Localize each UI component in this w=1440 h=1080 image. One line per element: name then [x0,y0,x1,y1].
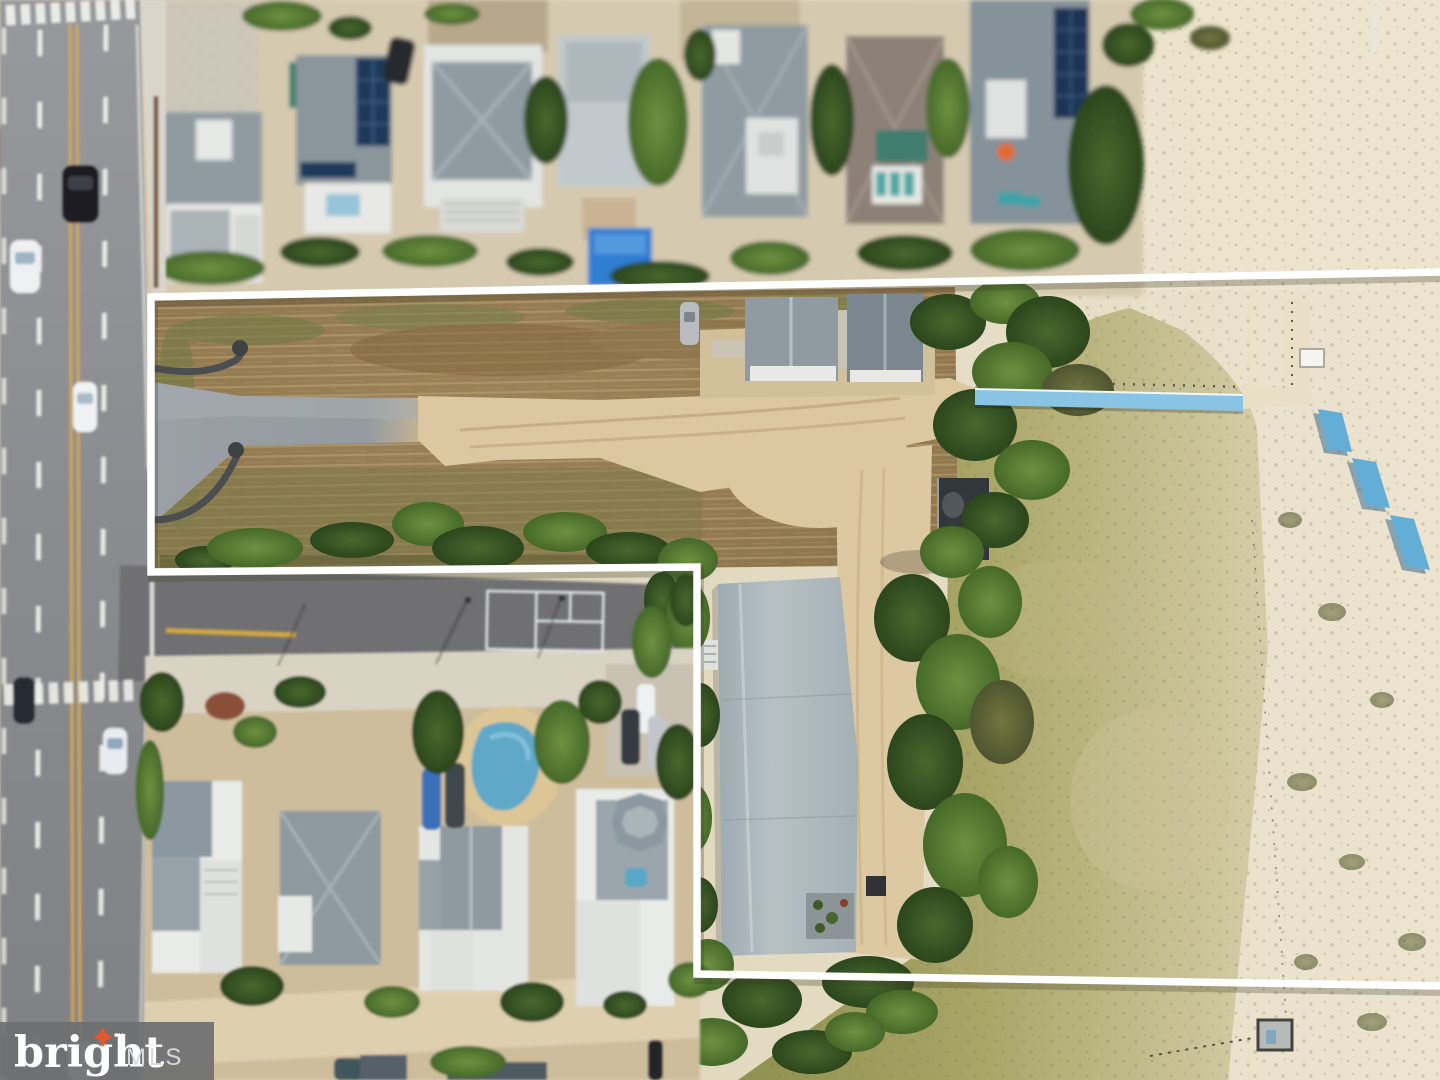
blue-boat [422,768,441,830]
orange-umbrella [997,143,1015,161]
house-bottom-4 [576,789,674,1006]
house-top-5 [702,25,808,217]
watermark-trademark: ™ [114,1032,124,1043]
house-bottom-1 [152,781,242,973]
car-black [62,165,99,223]
hot-tub [625,868,647,887]
car-dark-lane [648,1040,663,1080]
car-white-3 [103,728,127,774]
watermark-suffix-text: MLS [126,1044,184,1071]
house-bottom-3 [419,826,528,991]
car-dark-suv [445,763,465,828]
car-teal-lane [334,1058,363,1080]
house-top-3 [424,45,542,232]
aerial-listing-photo: bright ™ MLS [0,0,1440,1080]
aerial-photo-canvas: bright ™ MLS [0,0,1440,1080]
car-dark-2 [13,677,35,724]
green-pool [876,130,928,162]
car-white-1 [10,240,40,293]
car-white-2 [73,382,97,432]
house-bottom-2 [278,811,381,965]
cottage-walkway [712,340,745,357]
parcel-cottage-right [847,294,923,382]
parked-car-silver [680,302,699,345]
parcel-cottage-left [745,297,838,381]
partial-roof-2 [360,1055,407,1080]
brightmls-watermark: bright ™ MLS [0,1022,214,1080]
long-gray-house [700,577,858,958]
beach-fence-top-right [1370,0,1379,54]
dumpster [866,876,886,896]
beach-structure [1300,349,1324,367]
beach-shed [1258,1020,1292,1050]
car-dark-drive [621,709,640,765]
